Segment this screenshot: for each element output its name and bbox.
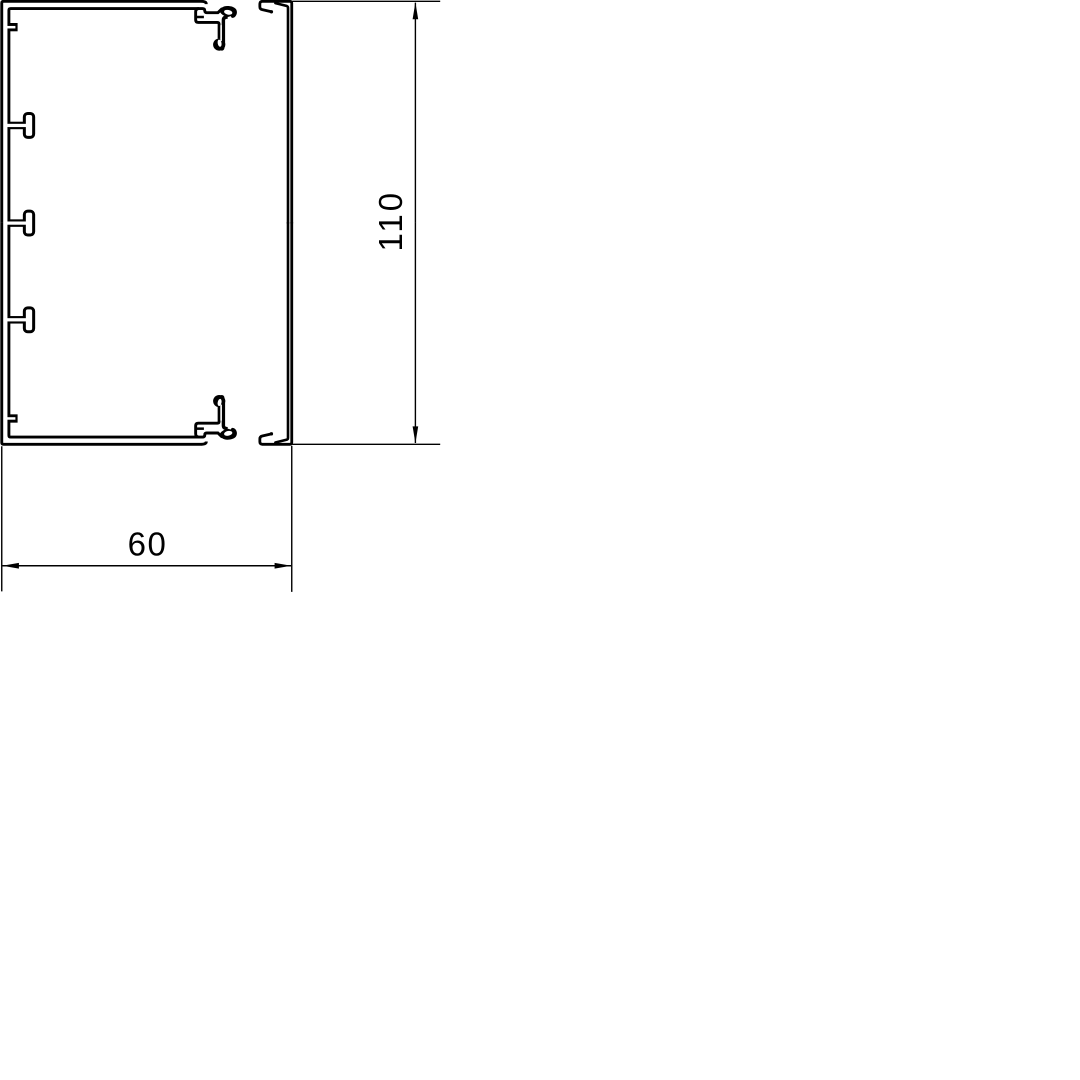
svg-text:60: 60 <box>128 526 168 563</box>
svg-text:110: 110 <box>372 190 409 252</box>
